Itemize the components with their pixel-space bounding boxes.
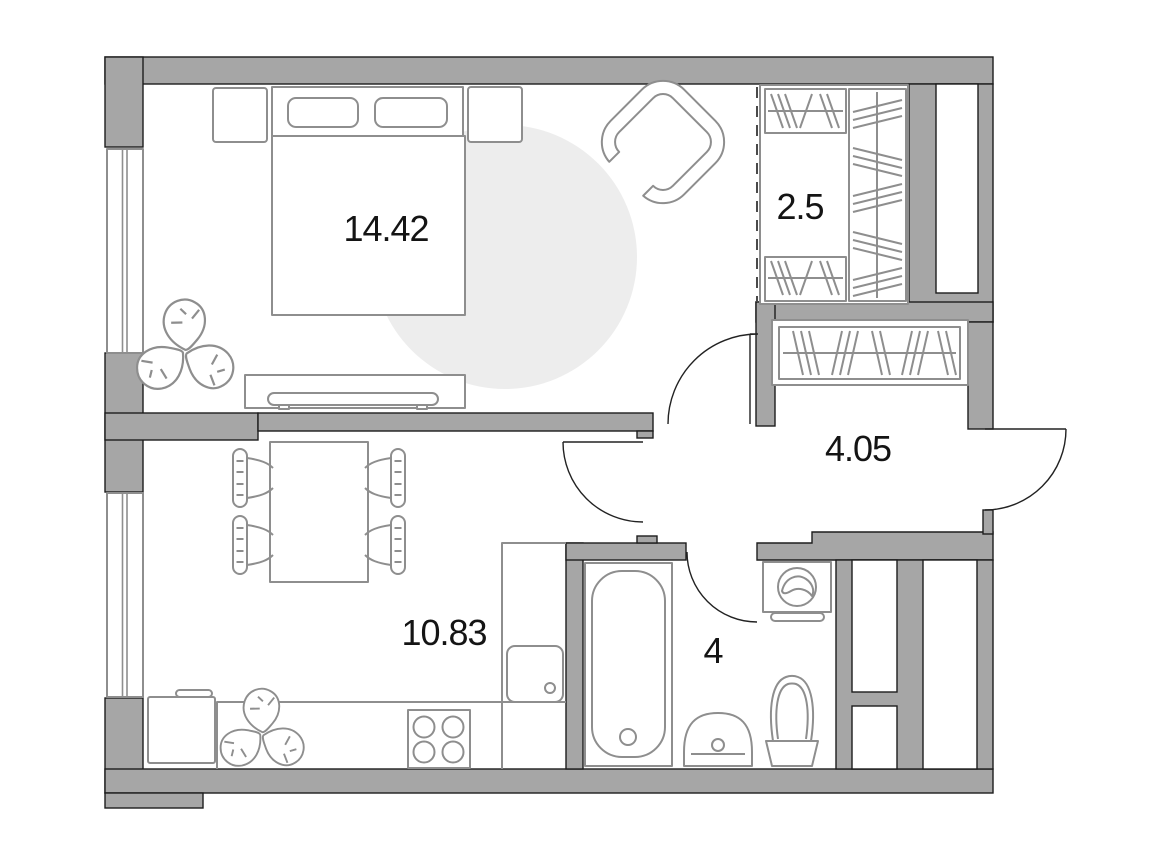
wall-segment xyxy=(968,322,993,429)
floor-plan-canvas: 14.42 2.5 4.05 xyxy=(0,0,1152,864)
wall-segment xyxy=(757,532,993,560)
shaft-niche xyxy=(852,560,897,692)
door-swing-icon xyxy=(687,552,757,622)
wardrobe-unit-icon xyxy=(765,257,846,301)
monstera-plant-icon xyxy=(216,686,311,772)
stove-icon xyxy=(408,710,470,768)
shaft-niche xyxy=(852,706,897,769)
dining-chair-icon xyxy=(233,516,273,574)
bathroom: 4 xyxy=(585,562,831,766)
door-swing-icon xyxy=(668,334,758,424)
kitchen-sink-icon xyxy=(507,646,563,702)
bathtub-icon xyxy=(585,563,672,766)
wardrobe-unit-icon xyxy=(849,89,906,301)
wall-segment xyxy=(105,57,143,147)
wall-segment xyxy=(566,543,583,769)
window-icon xyxy=(107,493,143,697)
wall-segment xyxy=(258,413,653,431)
nightstand-icon xyxy=(468,87,522,142)
washing-machine-icon xyxy=(763,562,831,621)
wall-segment xyxy=(566,543,686,560)
wall-segment xyxy=(983,510,993,534)
hallway-area-label: 4.05 xyxy=(825,428,891,469)
dining-chair-icon xyxy=(233,449,273,507)
wall-segment xyxy=(105,57,993,84)
double-bed-icon xyxy=(272,87,465,315)
wardrobe-closet: 2.5 xyxy=(757,85,908,304)
hallway: 4.05 xyxy=(772,320,968,469)
wardrobe-area-label: 2.5 xyxy=(776,186,823,227)
kitchen-living: 10.83 xyxy=(148,442,566,772)
bedroom-area-label: 14.42 xyxy=(343,208,428,249)
pillow-icon xyxy=(288,98,358,127)
wall-segment xyxy=(105,413,258,440)
wardrobe-unit-icon xyxy=(765,89,846,133)
wall-segment xyxy=(105,793,203,808)
wall-segment xyxy=(637,431,653,438)
dining-chair-icon xyxy=(365,449,405,507)
bathroom-sink-icon xyxy=(684,713,752,766)
monstera-plant-icon xyxy=(131,296,242,396)
toilet-icon xyxy=(766,676,818,766)
dining-chair-icon xyxy=(365,516,405,574)
door-swing-icon xyxy=(563,442,643,522)
window-icon xyxy=(107,149,143,353)
kitchen-area-label: 10.83 xyxy=(401,612,486,653)
nightstand-icon xyxy=(213,88,267,142)
floor-plan: 14.42 2.5 4.05 xyxy=(0,0,1152,864)
dining-table-icon xyxy=(270,442,368,582)
shaft-niche xyxy=(936,84,978,293)
fridge-icon xyxy=(148,690,215,763)
wall-segment xyxy=(105,769,993,793)
pillow-icon xyxy=(375,98,447,127)
entrance-door-swing-icon xyxy=(985,429,1066,510)
bathroom-area-label: 4 xyxy=(703,630,722,671)
tv-console-icon xyxy=(245,375,465,409)
hallway-wardrobe-icon xyxy=(772,320,968,385)
shaft-niche xyxy=(923,560,977,769)
wall-segment xyxy=(637,536,657,543)
